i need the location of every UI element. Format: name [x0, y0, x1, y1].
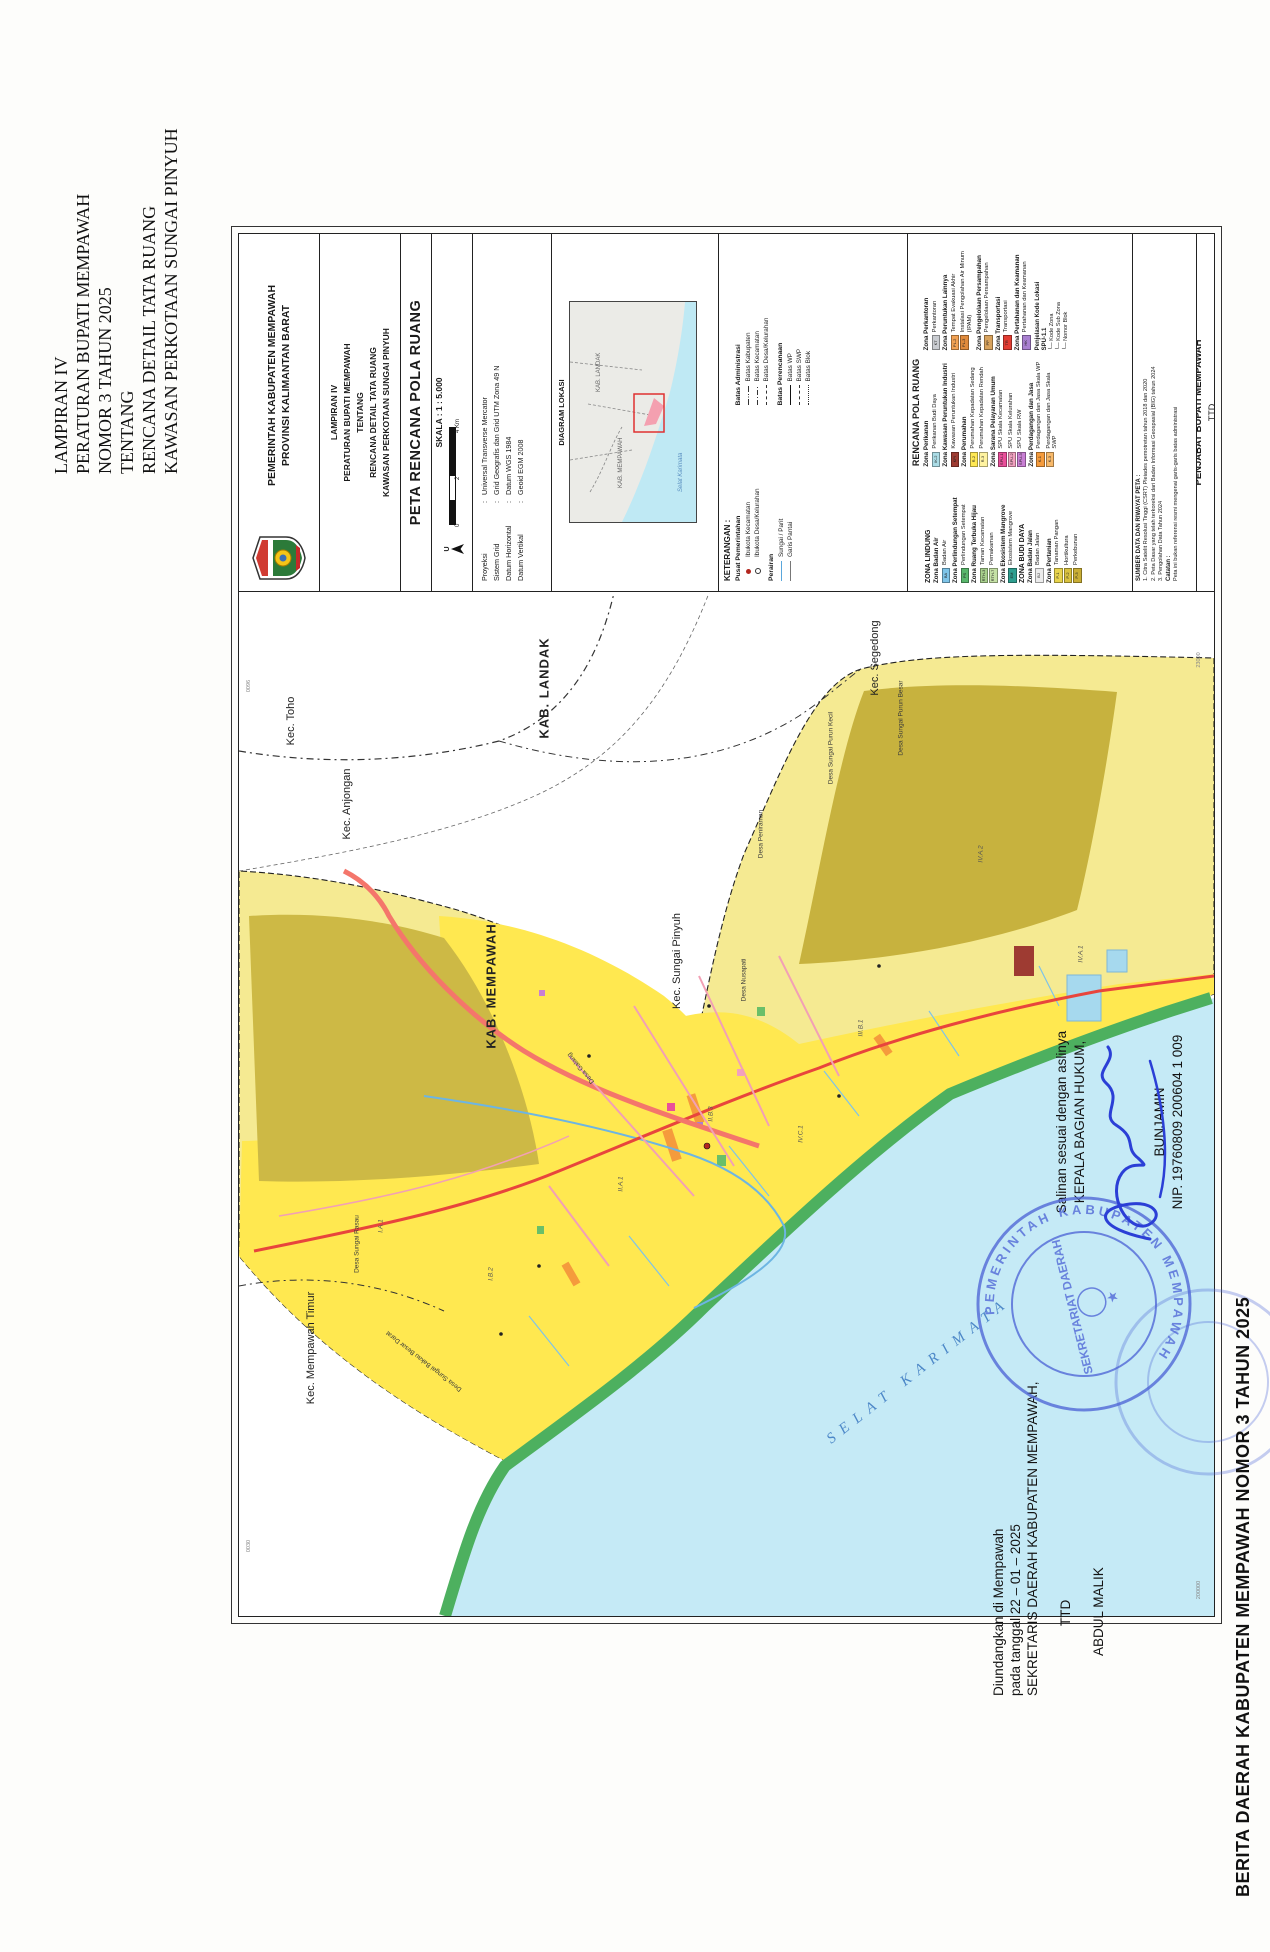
section-map-title: PETA RENCANA POLA RUANG — [401, 234, 432, 591]
keterangan-item: Batas Kecamatan — [753, 244, 762, 406]
panel-lampiran-line: TENTANG — [354, 234, 367, 591]
dash-symbol-icon — [763, 386, 771, 406]
line-thin-symbol-icon — [787, 561, 795, 581]
line-blue-symbol-icon — [778, 561, 786, 581]
keterangan-group: Pusat PemerintahanIbukota KecamatanIbuko… — [735, 420, 762, 582]
section-scale: SKALA : 1 : 5.000 U 0 2 4 Km — [432, 234, 473, 591]
keterangan-item: Ibukota Kecamatan — [744, 420, 753, 582]
legend-group: Zona PertanianP-1Tanaman PanganP-2Hortik… — [1046, 475, 1082, 583]
legend-item: P-3Perkebunan — [1073, 475, 1082, 583]
sumber-item: 1. Citra Satelit Resolusi Tinggi (CSRT) … — [1143, 244, 1150, 581]
legend-item: P-1Tanaman Pangan — [1054, 475, 1063, 583]
legend-color-chip: PL-3 — [960, 335, 969, 350]
section-legend: RENCANA POLA RUANG ZONA LINDUNGZona Bada… — [908, 234, 1133, 591]
legend-item: K-1Perdagangan dan Jasa Skala WP — [1036, 358, 1045, 466]
keterangan-item: Batas Desa/Kelurahan — [762, 244, 771, 406]
projection-row: Datum Horizontal:Datum WGS 1984 — [503, 244, 515, 581]
rth-patch — [717, 1155, 726, 1166]
lampiran-heading: LAMPIRAN IV PERATURAN BUPATI MEMPAWAH NO… — [50, 128, 182, 474]
dashdot-symbol-icon — [754, 386, 762, 406]
legend-color-chip: SPU-1 — [998, 452, 1007, 467]
legend-item: SPU-1SPU Skala Kecamatan — [998, 358, 1007, 466]
lampiran-line: RENCANA DETAIL TATA RUANG — [138, 128, 160, 474]
keterangan-item: Batas WP — [786, 244, 795, 406]
legend-item: PL-3Instalasi Pengolahan Air Minum (IPAM… — [960, 242, 974, 350]
legend-group: Zona Badan JalanBJBadan Jalan — [1027, 475, 1044, 583]
sumber-note-title: Catatan : — [1166, 244, 1173, 581]
legend-color-chip: P-3 — [1073, 568, 1082, 583]
legend-group: Zona Badan AirBABadan Air — [933, 475, 950, 583]
legend-color-chip: BA — [942, 568, 951, 583]
government-line: PROVINSI KALIMANTAN BARAT — [279, 244, 293, 527]
legend-title: RENCANA POLA RUANG — [911, 242, 921, 583]
legend-item: IK-2Perikanan Budi Daya — [932, 358, 941, 466]
legend-color-chip: IK-2 — [932, 452, 941, 467]
diagram-title: DIAGRAM LOKASI — [557, 242, 566, 583]
projection-row: Datum Vertikal:Geoid EGM 2008 — [515, 244, 527, 581]
legend-item: SPU-3SPU Skala RW — [1017, 358, 1026, 466]
industry-patch — [1014, 946, 1034, 976]
legend-color-chip: K-1 — [1036, 452, 1045, 467]
keterangan-item: Ibukota Desa/Kelurahan — [753, 420, 762, 582]
title-block-panel: PEMERINTAH KABUPATEN MEMPAWAH PROVINSI K… — [239, 234, 1214, 592]
section-projection: Proyeksi:Universal Transverse MercatorSi… — [473, 234, 552, 591]
legend-color-chip: PP — [984, 335, 993, 350]
rth-patch — [537, 1226, 544, 1234]
legend-item: PPPengelolaan Persampahan — [984, 242, 993, 350]
legend-item: R-3Perumahan Kepadatan Rendah — [979, 358, 988, 466]
desa-dot — [877, 964, 881, 968]
inset-label: KAB. LANDAK — [596, 353, 602, 392]
legend-group: Zona Peruntukan LainnyaPL-2Tempat Evakua… — [942, 242, 974, 350]
legend-color-chip: TR — [1003, 335, 1012, 350]
section-approval: Mengetahui, PENJABAT BUPATI MEMPAWAH TTD… — [1197, 234, 1214, 591]
legend-item: R-2Perumahan Kepadatan Sedang — [970, 358, 979, 466]
section-sumber-data: SUMBER DATA DAN RIWAYAT PETA : 1. Citra … — [1133, 234, 1197, 591]
section-government: PEMERINTAH KABUPATEN MEMPAWAH PROVINSI K… — [239, 234, 320, 591]
desa-dot — [537, 1264, 541, 1268]
sumber-note: Peta ini bukan referensi resmi mengenai … — [1173, 244, 1180, 581]
legend-color-chip: PS — [961, 568, 970, 583]
projection-row: Sistem Grid:Grid Geografis dan Grid UTM … — [491, 244, 503, 581]
keterangan-title: KETERANGAN : — [723, 244, 732, 581]
projection-row: Proyeksi:Universal Transverse Mercator — [479, 244, 491, 581]
section-diagram-lokasi: DIAGRAM LOKASI KAB. LANDAK KAB. MEMPAWAH… — [552, 234, 719, 591]
legend-color-chip: HK — [1022, 335, 1031, 350]
legend-group: Zona TransportasiTRTransportasi — [995, 242, 1012, 350]
legend-item: KTPerkantoran — [932, 242, 941, 350]
legend-item: RTH-3Taman Kecamatan — [980, 475, 989, 583]
legend-color-chip: R-2 — [970, 452, 979, 467]
scale-tick: 4 Km — [455, 419, 461, 433]
legend-group: Zona Kawasan Peruntukan IndustriKPIKawas… — [942, 358, 959, 466]
government-line: PEMERINTAH KABUPATEN MEMPAWAH — [265, 244, 279, 527]
map-title: PETA RENCANA POLA RUANG — [408, 300, 424, 526]
legend-item: BJBadan Jalan — [1035, 475, 1044, 583]
legend-color-chip: EM — [1008, 568, 1017, 583]
dot-open-symbol-icon — [754, 561, 762, 581]
legend-item: BABadan Air — [942, 475, 951, 583]
desa-dot — [587, 1054, 591, 1058]
legend-group: Zona Sarana Pelayanan UmumSPU-1SPU Skala… — [990, 358, 1026, 466]
sumber-title: SUMBER DATA DAN RIWAYAT PETA : — [1136, 244, 1143, 581]
lampiran-line: NOMOR 3 TAHUN 2025 — [94, 128, 116, 474]
scale-tick: 2 — [455, 477, 461, 480]
signature-icon — [1078, 1007, 1178, 1257]
keterangan-group: Batas AdministrasiBatas KabupatenBatas K… — [735, 244, 771, 406]
legend-group: Zona PerumahanR-2Perumahan Kepadatan Sed… — [961, 358, 988, 466]
legend-color-chip: K-3 — [1046, 452, 1055, 467]
legend-item: KPIKawasan Peruntukan Industri — [951, 358, 960, 466]
scale-label: SKALA : 1 : 5.000 — [434, 242, 444, 583]
legend-code-note: Penjelasan Kode LokasiSPU-1.1└─ Kode Zon… — [1035, 242, 1070, 350]
legend-group: Zona Pengelolaan PersampahanPPPengelolaa… — [976, 242, 993, 350]
section-lampiran: LAMPIRAN IV PERATURAN BUPATI MEMPAWAH TE… — [320, 234, 401, 591]
legend-item: PSPerlindungan Setempat — [961, 475, 970, 583]
legend-color-chip: R-3 — [979, 452, 988, 467]
sumber-item: 3. Pengolahan Data Tahun 2024 — [1158, 244, 1165, 581]
legend-item: HKPertahanan dan Keamanan — [1022, 242, 1031, 350]
legend-item: P-2Hortikultura — [1064, 475, 1073, 583]
legend-group: Zona PerikananIK-2Perikanan Budi Daya — [923, 358, 940, 466]
approval-line: PENJABAT BUPATI MEMPAWAH — [1197, 339, 1204, 485]
berita-daerah-footer: BERITA DAERAH KABUPATEN MEMPAWAH NOMOR 3… — [1233, 1297, 1254, 1897]
legend-color-chip: P-2 — [1064, 568, 1073, 583]
legend-item: TRTransportasi — [1003, 242, 1012, 350]
sumber-item: 2. Peta Dasar yang telah terkoreksi dari… — [1151, 244, 1158, 581]
spu-patch — [539, 990, 545, 996]
keterangan-item: Batas Blok — [804, 244, 813, 406]
map-sheet: LAMPIRAN IV PERATURAN BUPATI MEMPAWAH NO… — [0, 0, 1270, 1952]
scale-bar: 0 2 4 Km — [447, 413, 463, 533]
legend-group: Zona Perdagangan dan JasaK-1Perdagangan … — [1028, 358, 1060, 466]
dash-symbol-icon — [796, 386, 804, 406]
legend-color-chip: PL-2 — [951, 335, 960, 350]
inset-label: KAB. MEMPAWAH — [618, 438, 624, 488]
keterangan-item: Batas Kabupaten — [744, 244, 753, 406]
legend-color-chip: RTH-7 — [989, 568, 998, 583]
legend-section-header: ZONA BUDI DAYA — [1019, 475, 1026, 583]
panel-lampiran-line: RENCANA DETAIL TATA RUANG — [367, 234, 380, 591]
dots-symbol-icon — [805, 386, 813, 406]
legend-color-chip: KT — [932, 335, 941, 350]
panel-lampiran-line: LAMPIRAN IV — [328, 234, 341, 591]
legend-color-chip: SPU-3 — [1017, 452, 1026, 467]
legend-color-chip: RTH-3 — [980, 568, 989, 583]
approval-line: TTD — [1207, 404, 1214, 422]
dot-filled-symbol-icon — [745, 561, 753, 581]
stamp-inner-text: SEKRETARIAT DAERAH — [1049, 1238, 1096, 1376]
legend-group: Zona PerkantoranKTPerkantoran — [923, 242, 940, 350]
legend-item: SPU-2SPU Skala Kelurahan — [1008, 358, 1017, 466]
desa-dot — [837, 1094, 841, 1098]
scanned-page: LAMPIRAN IV PERATURAN BUPATI MEMPAWAH NO… — [0, 0, 1270, 1952]
legend-group: Zona Ekosistem MangroveEMEkosistem Mangr… — [1000, 475, 1017, 583]
panel-lampiran-line: KAWASAN PERKOTAAN SUNGAI PINYUH — [380, 234, 393, 591]
keterangan-item: Garis Pantai — [786, 420, 795, 582]
section-keterangan: KETERANGAN : Pusat PemerintahanIbukota K… — [719, 234, 908, 591]
legend-group: Zona Ruang Terbuka HijauRTH-3Taman Kecam… — [971, 475, 998, 583]
lampiran-line: KAWASAN PERKOTAAN SUNGAI PINYUH — [160, 128, 182, 474]
legend-color-chip: KPI — [951, 452, 960, 467]
legend-group: Zona Pertahanan dan KeamananHKPertahanan… — [1014, 242, 1031, 350]
lampiran-line: PERATURAN BUPATI MEMPAWAH — [72, 128, 94, 474]
legend-group: Zona Perlindungan SetempatPSPerlindungan… — [952, 475, 969, 583]
lampiran-line: LAMPIRAN IV — [50, 128, 72, 474]
spu-patch — [667, 1103, 675, 1111]
legend-section-header: ZONA LINDUNG — [925, 475, 932, 583]
legend-item: PL-2Tempat Evakuasi Akhir — [951, 242, 960, 350]
mempawah-logo-icon — [252, 535, 306, 581]
legend-color-chip: SPU-2 — [1008, 452, 1017, 467]
scale-tick: 0 — [455, 524, 461, 527]
rth-patch — [757, 1007, 765, 1016]
desa-dot — [707, 1004, 711, 1008]
north-arrow-icon: U — [445, 543, 465, 555]
inset-label: Selat Karimata — [678, 452, 684, 492]
keterangan-group: Batas PerencanaanBatas WPBatas SWPBatas … — [777, 244, 813, 406]
legend-color-chip: P-1 — [1054, 568, 1063, 583]
legend-item: EMEkosistem Mangrove — [1008, 475, 1017, 583]
ibukota-kecamatan-dot — [704, 1143, 710, 1149]
keterangan-item: Batas SWP — [795, 244, 804, 406]
keterangan-group: PerairanSungai / ParitGaris Pantai — [768, 420, 795, 582]
inset-map: KAB. LANDAK KAB. MEMPAWAH Selat Karimata — [569, 302, 697, 524]
desa-dot — [499, 1332, 503, 1336]
legend-item: K-3Perdagangan dan Jasa Skala SWP — [1046, 358, 1060, 466]
keterangan-item: Sungai / Parit — [777, 420, 786, 582]
dashdotdot-symbol-icon — [745, 386, 753, 406]
panel-lampiran-line: PERATURAN BUPATI MEMPAWAH — [341, 234, 354, 591]
legend-item: RTH-7Pemakaman — [989, 475, 998, 583]
legend-color-chip: BJ — [1035, 568, 1044, 583]
lampiran-line: TENTANG — [116, 128, 138, 474]
solid-symbol-icon — [787, 386, 795, 406]
